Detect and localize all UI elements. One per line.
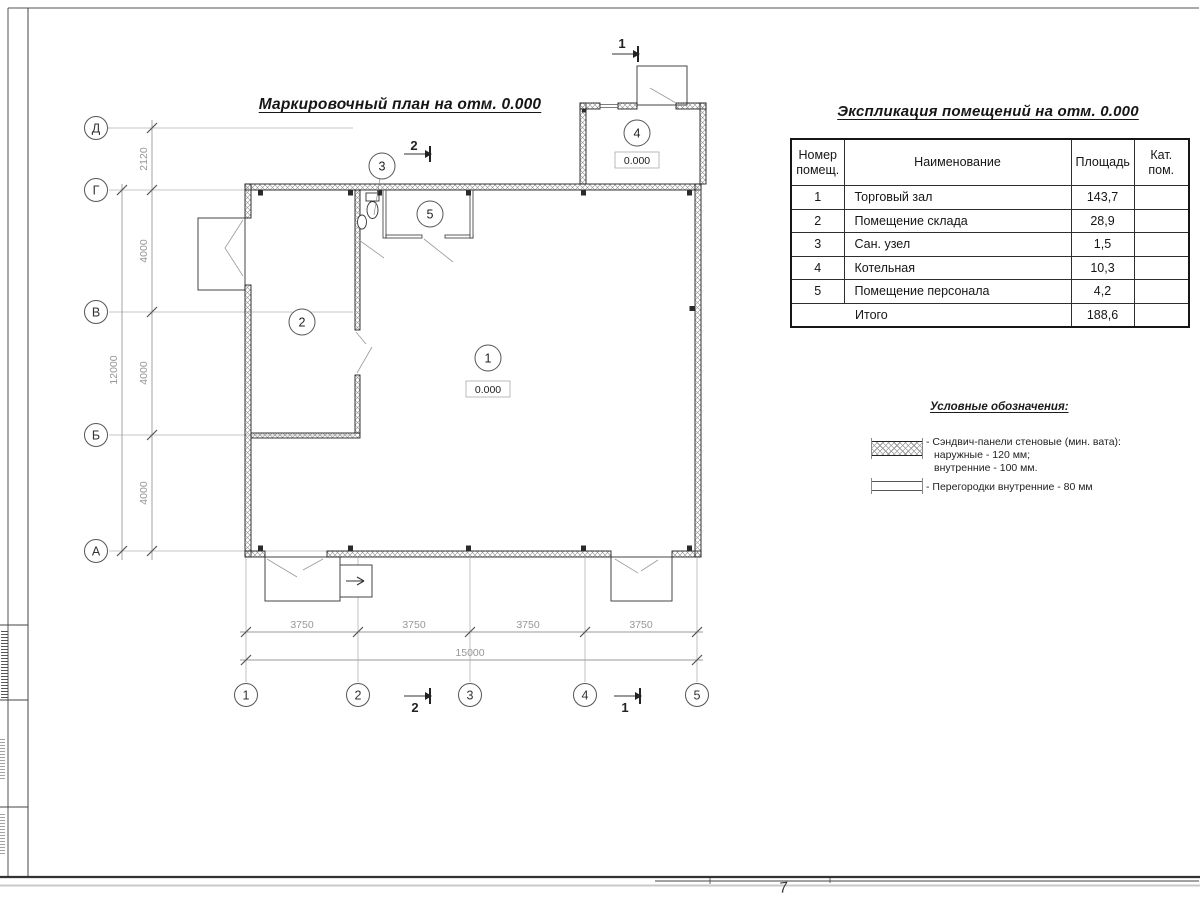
cell-room-area: 143,7 xyxy=(1071,186,1134,210)
legend-text: - Перегородки внутренние - 80 мм xyxy=(926,481,1093,494)
legend-text: - Сэндвич-панели стеновые (мин. вата): xyxy=(926,436,1121,449)
cell-room-category xyxy=(1134,280,1189,304)
grid-label-col: 3 xyxy=(467,689,474,703)
cell-room-number: 2 xyxy=(791,209,844,233)
entrance-vestibule-left xyxy=(265,557,340,601)
section-number: 2 xyxy=(410,138,417,153)
dim-label: 3750 xyxy=(402,619,426,631)
section-number: 1 xyxy=(621,700,628,715)
cell-room-area: 10,3 xyxy=(1071,256,1134,280)
sheet-bottom-edge: 7 xyxy=(0,877,1200,897)
window-boiler xyxy=(600,105,618,108)
table-row: 5 Помещение персонала 4,2 xyxy=(791,280,1189,304)
col-header-room-number: Номер помещ. xyxy=(791,139,844,186)
grid-label-col: 2 xyxy=(355,689,362,703)
column-marks xyxy=(258,109,695,551)
sandwich-walls xyxy=(245,103,706,557)
left-margin-text-block xyxy=(0,630,8,854)
room-number: 5 xyxy=(427,208,434,222)
grid-label-col: 4 xyxy=(582,689,589,703)
room-number: 1 xyxy=(485,352,492,366)
grid-label-row: В xyxy=(92,306,100,320)
cell-room-area: 28,9 xyxy=(1071,209,1134,233)
cell-room-area: 1,5 xyxy=(1071,233,1134,257)
grid-label-row: А xyxy=(92,545,101,559)
cell-room-number: 3 xyxy=(791,233,844,257)
legend-title: Условные обозначения: xyxy=(930,401,1069,413)
elevation-mark-room1: 0.000 xyxy=(466,381,510,397)
section-marker-2-top: 2 xyxy=(404,138,432,162)
room-label-4: 4 xyxy=(624,120,650,146)
grid-label-col: 1 xyxy=(243,689,250,703)
boiler-vestibule xyxy=(637,66,687,105)
cell-room-category xyxy=(1134,233,1189,257)
grid-label-row: Б xyxy=(92,429,100,443)
section-number: 1 xyxy=(618,36,625,51)
vertical-dimensions: 2120 4000 4000 4000 12000 xyxy=(108,120,157,560)
legend-text: внутренние - 100 мм. xyxy=(934,462,1038,475)
cell-room-name: Торговый зал xyxy=(844,186,1071,210)
door-swings xyxy=(225,88,676,577)
section-markers: 2 1 2 1 xyxy=(404,36,642,715)
explication-title: Экспликация помещений на отм. 0.000 xyxy=(828,103,1148,120)
cell-room-number: 4 xyxy=(791,256,844,280)
room-number: 4 xyxy=(634,127,641,141)
sink-icon xyxy=(358,215,367,229)
room-number: 3 xyxy=(379,160,386,174)
table-header-row: Номер помещ. Наименование Площадь Кат. п… xyxy=(791,139,1189,186)
table-row: 2 Помещение склада 28,9 xyxy=(791,209,1189,233)
elevation-value: 0.000 xyxy=(475,384,501,396)
room-number: 2 xyxy=(299,316,306,330)
room-label-2: 2 xyxy=(289,309,315,335)
col-header-name: Наименование xyxy=(844,139,1071,186)
cell-room-name: Котельная xyxy=(844,256,1071,280)
room-label-3: 3 xyxy=(369,153,395,179)
grid-row-bubbles: Д Г В Б А xyxy=(85,117,110,563)
section-number: 2 xyxy=(411,700,418,715)
cell-room-name: Помещение персонала xyxy=(844,280,1071,304)
vestibules xyxy=(198,66,687,601)
dim-label: 3750 xyxy=(516,619,540,631)
col-header-category: Кат. пом. xyxy=(1134,139,1189,186)
dim-label-total: 15000 xyxy=(455,647,484,659)
left-porch xyxy=(198,218,245,290)
room-label-5: 5 xyxy=(417,201,443,227)
table-total-row: Итого 188,6 xyxy=(791,303,1189,327)
elevation-mark-room4: 0.000 xyxy=(615,152,659,168)
section-marker-2-bottom: 2 xyxy=(404,688,432,715)
dim-label: 2120 xyxy=(138,147,150,171)
dim-label: 4000 xyxy=(138,239,150,263)
cell-room-name: Помещение склада xyxy=(844,209,1071,233)
plan-title: Маркировочный план на отм. 0.000 xyxy=(240,96,560,114)
cell-room-category xyxy=(1134,256,1189,280)
dim-label-total: 12000 xyxy=(108,355,120,384)
dim-label: 4000 xyxy=(138,481,150,505)
cell-total-label: Итого xyxy=(791,303,1071,327)
cell-room-category xyxy=(1134,186,1189,210)
elevation-value: 0.000 xyxy=(624,155,650,167)
sandwich-panel-swatch xyxy=(872,441,922,456)
table-row: 4 Котельная 10,3 xyxy=(791,256,1189,280)
room-labels: 1 2 3 4 5 0.000 0.000 xyxy=(289,120,659,397)
dim-label: 3750 xyxy=(629,619,653,631)
grid-label-row: Г xyxy=(93,184,100,198)
cell-room-number: 1 xyxy=(791,186,844,210)
legend-text: наружные - 120 мм; xyxy=(934,449,1030,462)
room-explication-table: Номер помещ. Наименование Площадь Кат. п… xyxy=(790,138,1190,328)
dim-label: 3750 xyxy=(290,619,314,631)
table-row: 1 Торговый зал 143,7 xyxy=(791,186,1189,210)
horizontal-dimensions: 3750 3750 3750 3750 15000 xyxy=(240,619,703,665)
col-header-area: Площадь xyxy=(1071,139,1134,186)
sheet-note: 7 xyxy=(778,879,789,897)
grid-label-row: Д xyxy=(92,122,101,136)
grid-label-col: 5 xyxy=(694,689,701,703)
cell-room-number: 5 xyxy=(791,280,844,304)
cell-room-area: 4,2 xyxy=(1071,280,1134,304)
cell-room-category xyxy=(1134,209,1189,233)
table-row: 3 Сан. узел 1,5 xyxy=(791,233,1189,257)
cell-room-name: Сан. узел xyxy=(844,233,1071,257)
room-label-1: 1 xyxy=(475,345,501,371)
cell-total-category xyxy=(1134,303,1189,327)
cell-total-area: 188,6 xyxy=(1071,303,1134,327)
partition-swatch xyxy=(872,481,922,491)
section-marker-1-top: 1 xyxy=(612,36,640,62)
dim-label: 4000 xyxy=(138,361,150,385)
grid-lines xyxy=(109,128,697,682)
entrance-vestibule-right xyxy=(611,557,672,601)
section-marker-1-bottom: 1 xyxy=(614,688,642,715)
